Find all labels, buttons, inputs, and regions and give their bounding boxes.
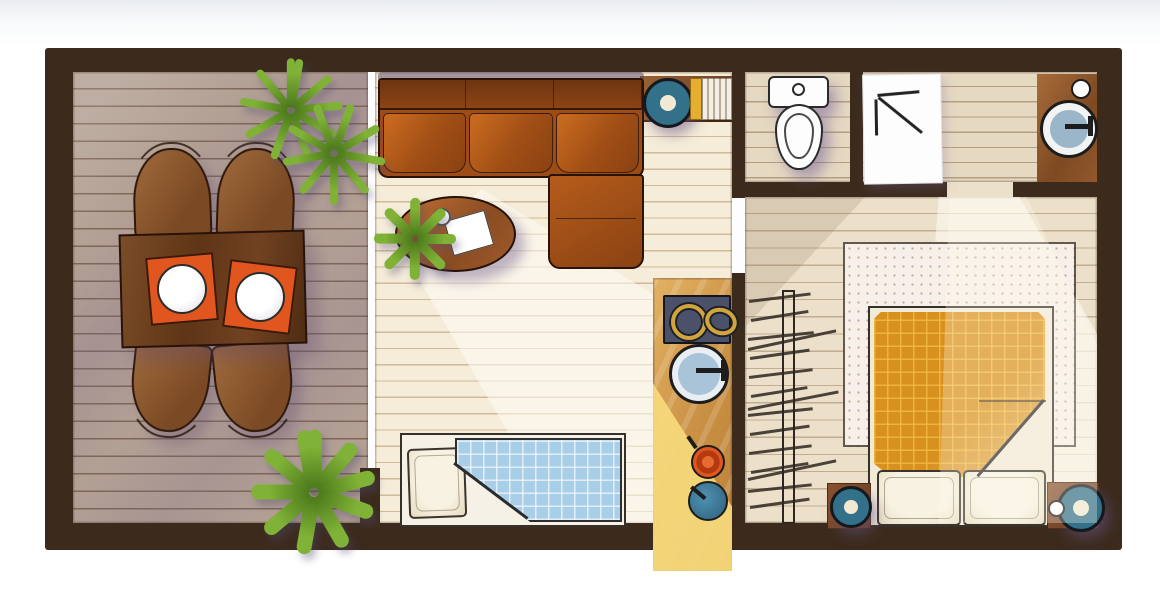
toilet-bowl <box>775 104 823 170</box>
radiator <box>782 290 795 524</box>
burner-icon <box>702 304 741 340</box>
yellow-book <box>690 78 702 120</box>
kitchen-sink <box>669 344 729 404</box>
sketch-stroke <box>877 90 919 96</box>
burner-icon <box>671 304 707 340</box>
speaker-nightstand <box>830 486 872 528</box>
bedroom-door <box>732 198 745 273</box>
shower-mat <box>862 73 943 184</box>
book-stack <box>702 78 732 120</box>
stove-top <box>663 295 731 344</box>
sofa-seats <box>380 110 642 176</box>
floor-plan-canvas <box>0 0 1160 603</box>
leaf-icon <box>287 58 295 106</box>
sketch-stroke <box>874 99 877 135</box>
sofa-backrest <box>380 80 642 110</box>
soap-dish <box>1071 79 1091 99</box>
sketch-stroke <box>878 96 923 133</box>
sofa-chaise <box>548 174 644 269</box>
leaf-icon <box>330 157 338 205</box>
apartment-outer-walls <box>45 48 1122 550</box>
sofa-cushion <box>469 113 552 173</box>
dining-chair <box>131 147 212 240</box>
wall-toilet-shower-divider <box>850 72 863 182</box>
dining-chair <box>211 338 298 436</box>
orange-pan <box>691 445 725 479</box>
sofa-l-shaped <box>378 78 644 178</box>
faucet-crossbar-icon <box>721 360 726 381</box>
sofa-cushion <box>556 113 639 173</box>
bathroom-door <box>947 182 1013 197</box>
plant-terrace-bottom <box>258 433 370 545</box>
faucet-crossbar-icon <box>1088 116 1093 136</box>
plate <box>157 264 207 314</box>
plant-coffee-table <box>378 201 452 275</box>
toilet <box>768 74 826 170</box>
sofa-cushion <box>383 113 466 173</box>
plant-terrace-top <box>288 106 380 198</box>
flush-button-icon <box>792 83 805 96</box>
plate <box>235 272 285 322</box>
dining-chair <box>127 338 214 436</box>
speaker-shelf <box>643 78 693 128</box>
